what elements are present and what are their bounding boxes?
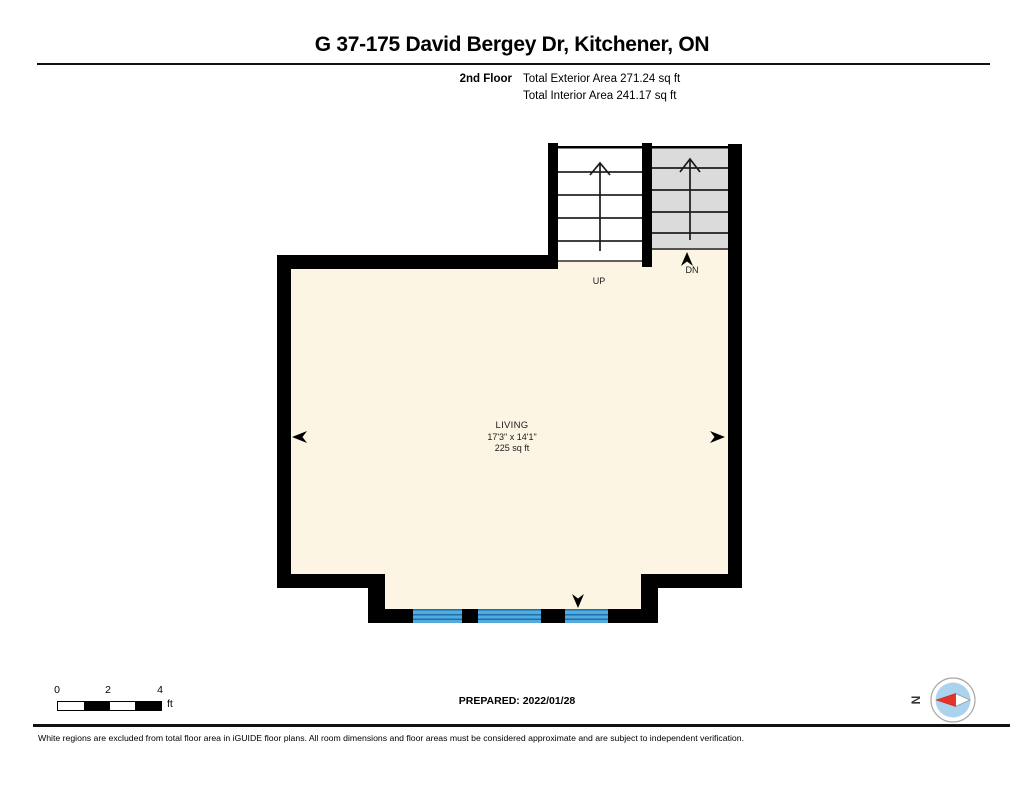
window-segment-2 bbox=[478, 609, 541, 623]
footer-divider bbox=[33, 724, 1010, 727]
staircase-down bbox=[652, 146, 728, 250]
disclaimer-text: White regions are excluded from total fl… bbox=[38, 733, 1003, 743]
dimension-arrow-right-icon bbox=[710, 431, 725, 443]
north-label: N bbox=[909, 696, 923, 705]
north-compass-icon: N bbox=[903, 674, 983, 726]
wall-stair-middle bbox=[642, 143, 652, 267]
title-divider bbox=[37, 63, 990, 65]
total-interior-area: Total Interior Area 241.17 sq ft bbox=[523, 88, 680, 105]
scale-tick-4: 4 bbox=[150, 684, 170, 696]
window-segment-3 bbox=[565, 609, 608, 623]
floor-areas: Total Exterior Area 271.24 sq ft Total I… bbox=[523, 71, 680, 105]
stair-up-label: UP bbox=[584, 276, 614, 286]
scale-segment bbox=[84, 702, 110, 710]
stair-down-label: DN bbox=[677, 265, 707, 275]
room-name: LIVING bbox=[437, 420, 587, 432]
total-exterior-area: Total Exterior Area 271.24 sq ft bbox=[523, 71, 680, 88]
window-alcove-floor bbox=[385, 574, 641, 609]
wall-bottom-right bbox=[641, 574, 742, 588]
dimension-arrow-left-icon bbox=[292, 431, 307, 443]
room-dimensions: 17'3" x 14'1" bbox=[437, 432, 587, 444]
scale-bar bbox=[57, 701, 162, 711]
wall-right bbox=[728, 144, 742, 588]
prepared-date: PREPARED: 2022/01/28 bbox=[417, 695, 617, 707]
stair-entry-arrow-icon bbox=[681, 252, 693, 266]
floor-info: 2nd Floor Total Exterior Area 271.24 sq … bbox=[0, 71, 1024, 105]
wall-top bbox=[277, 255, 558, 269]
scale-unit-label: ft bbox=[167, 698, 173, 710]
floorplan-page: G 37-175 David Bergey Dr, Kitchener, ON … bbox=[0, 0, 1024, 791]
wall-left bbox=[277, 255, 291, 588]
scale-segment bbox=[135, 702, 161, 710]
wall-stair-left bbox=[548, 143, 558, 255]
page-title: G 37-175 David Bergey Dr, Kitchener, ON bbox=[0, 33, 1024, 57]
dimension-arrow-down-icon bbox=[572, 594, 584, 608]
scale-tick-2: 2 bbox=[98, 684, 118, 696]
floor-name: 2nd Floor bbox=[0, 71, 512, 105]
staircase-up bbox=[558, 146, 642, 262]
scale-tick-0: 0 bbox=[47, 684, 67, 696]
window-segment-1 bbox=[413, 609, 462, 623]
room-label: LIVING 17'3" x 14'1" 225 sq ft bbox=[437, 420, 587, 455]
scale-segment bbox=[58, 702, 84, 710]
room-area: 225 sq ft bbox=[437, 443, 587, 455]
scale-segment bbox=[110, 702, 136, 710]
